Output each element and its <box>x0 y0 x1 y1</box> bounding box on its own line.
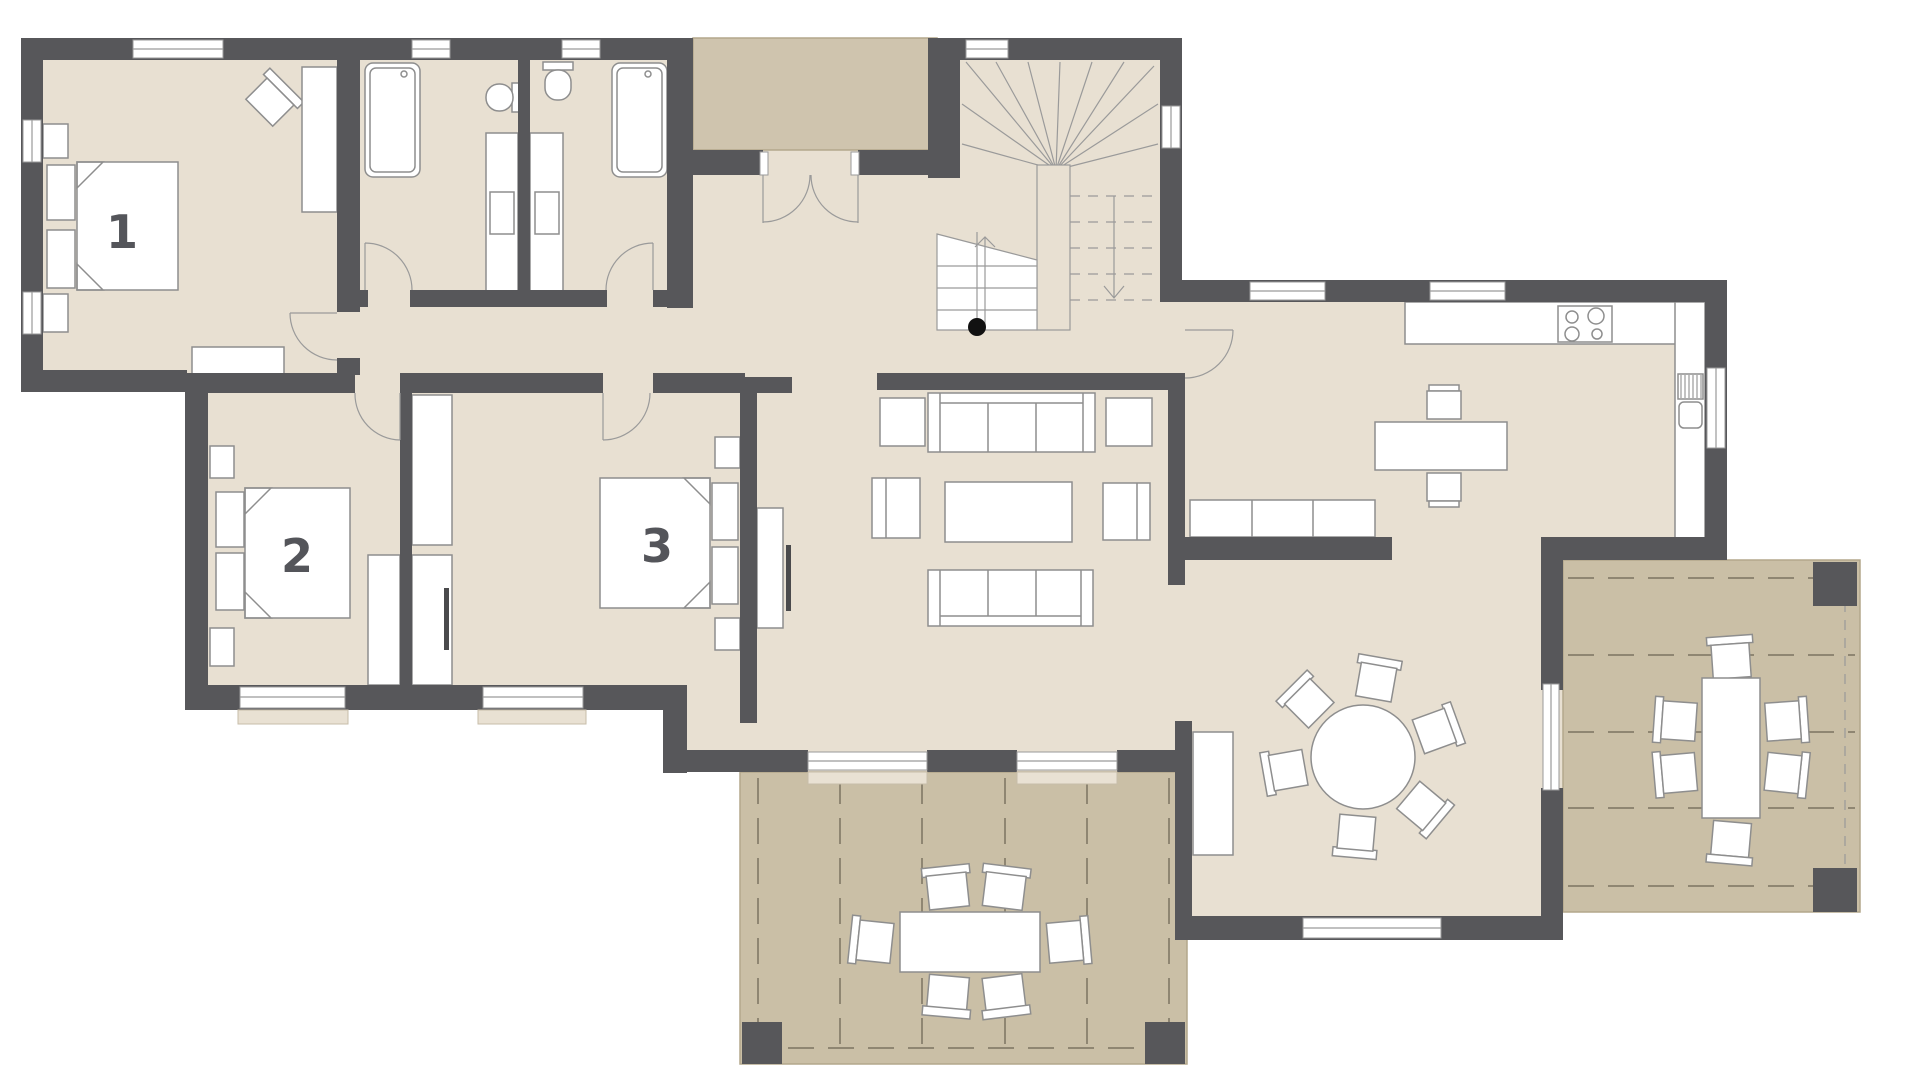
bench <box>1190 500 1375 537</box>
room-label-bedroom-3: 3 <box>641 519 673 573</box>
toilet <box>543 62 573 100</box>
bathtub <box>612 63 667 177</box>
tv <box>786 545 791 611</box>
window <box>238 687 348 724</box>
outdoor-table <box>1702 678 1760 818</box>
window <box>966 40 1008 58</box>
window <box>1250 282 1325 300</box>
room-label-bedroom-2: 2 <box>281 529 313 583</box>
entry-porch <box>693 38 937 150</box>
wardrobe <box>302 67 337 212</box>
radiator <box>210 628 234 666</box>
window <box>1430 282 1505 300</box>
bathtub <box>365 63 420 177</box>
window <box>478 687 586 724</box>
vanity-sink <box>530 133 563 293</box>
window <box>23 292 41 334</box>
pergola-post <box>1145 1022 1185 1064</box>
tv <box>444 588 449 650</box>
tall-cabinet <box>1193 732 1233 855</box>
radiator <box>43 294 68 332</box>
window <box>562 40 600 58</box>
sofa <box>928 570 1093 626</box>
sideboard <box>192 347 284 374</box>
radiator <box>43 124 68 158</box>
pergola-post <box>742 1022 782 1064</box>
east-terrace <box>1563 560 1860 912</box>
window <box>1707 368 1725 448</box>
vanity-sink <box>486 133 518 293</box>
glass-door <box>1017 752 1117 784</box>
sofa <box>928 393 1095 452</box>
pergola-post <box>1813 868 1857 912</box>
radiator <box>715 618 740 650</box>
south-terrace <box>740 772 1187 1064</box>
window <box>412 40 450 58</box>
sliding-glass-door <box>1543 684 1559 790</box>
floor-plan-canvas: 1 2 3 <box>0 0 1920 1080</box>
window <box>23 120 41 162</box>
floor-plan-page: 1 2 3 <box>0 0 1920 1080</box>
closet <box>412 395 452 545</box>
pergola-post <box>1813 562 1857 606</box>
toilet <box>486 83 519 112</box>
side-table <box>880 398 925 446</box>
armchair <box>872 478 920 538</box>
armchair <box>1103 483 1150 540</box>
window <box>1162 106 1180 148</box>
section-marker-dot <box>968 318 986 336</box>
radiator <box>210 446 234 478</box>
window <box>133 40 223 58</box>
outdoor-table <box>900 912 1040 972</box>
side-table <box>1106 398 1152 446</box>
coffee-table <box>945 482 1072 542</box>
closet <box>368 555 400 685</box>
kitchen-counter <box>1405 302 1705 344</box>
window <box>1303 918 1441 938</box>
round-dining-table <box>1311 705 1415 809</box>
glass-door <box>808 752 927 784</box>
radiator <box>715 437 740 468</box>
room-label-bedroom-1: 1 <box>106 205 138 259</box>
